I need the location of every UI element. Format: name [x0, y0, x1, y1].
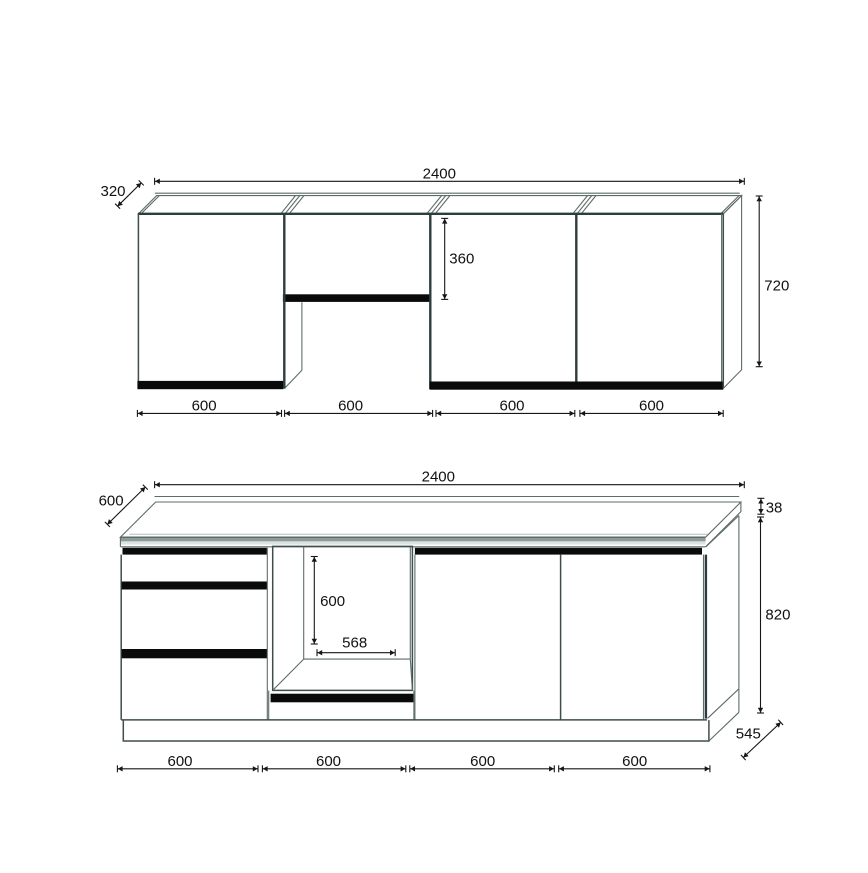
- svg-text:600: 600: [622, 753, 647, 770]
- svg-text:600: 600: [99, 493, 124, 510]
- svg-text:360: 360: [449, 250, 474, 267]
- svg-text:600: 600: [470, 753, 495, 770]
- svg-text:568: 568: [342, 635, 367, 652]
- svg-text:2400: 2400: [422, 468, 455, 485]
- svg-text:600: 600: [320, 593, 345, 610]
- svg-text:600: 600: [192, 398, 217, 415]
- svg-text:600: 600: [167, 753, 192, 770]
- svg-text:720: 720: [764, 277, 789, 294]
- svg-text:600: 600: [499, 398, 524, 415]
- svg-text:545: 545: [736, 726, 761, 743]
- svg-text:320: 320: [100, 183, 125, 200]
- svg-text:38: 38: [766, 499, 783, 516]
- svg-text:600: 600: [639, 398, 664, 415]
- svg-text:820: 820: [765, 606, 790, 623]
- svg-text:600: 600: [338, 398, 363, 415]
- svg-text:600: 600: [316, 753, 341, 770]
- svg-text:2400: 2400: [423, 166, 456, 183]
